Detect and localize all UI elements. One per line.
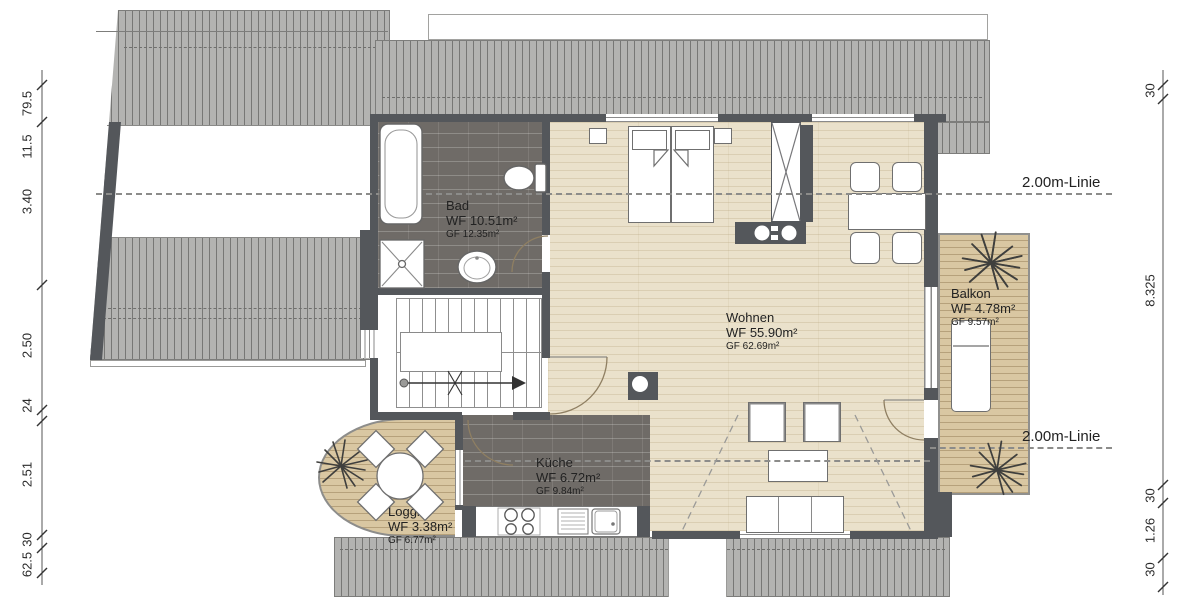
line-2m-bottom-inner xyxy=(465,460,930,462)
roof-dashed-line-bottom-a xyxy=(340,549,668,550)
room-name-balkon: Balkon xyxy=(951,286,1015,301)
armchair-1 xyxy=(748,402,786,442)
dimension-ticks-right xyxy=(1158,80,1168,592)
wall-bad-stair-divider xyxy=(370,288,550,295)
room-label-loggia: Loggia WF 3.38m² GF 6.77m² xyxy=(388,504,452,546)
room-label-kueche: Küche WF 6.72m² GF 9.84m² xyxy=(536,455,600,497)
wall-stair-bottom-right xyxy=(513,412,550,420)
label-2m-linie-top: 2.00m-Linie xyxy=(1022,174,1100,191)
kitchen-island xyxy=(735,222,806,244)
room-name-kueche: Küche xyxy=(536,455,600,470)
door-opening-balkon xyxy=(924,400,938,438)
nightstand-right xyxy=(714,128,732,144)
kitchen-counter-stub-left xyxy=(462,506,476,537)
room-name-wohnen: Wohnen xyxy=(726,310,798,325)
roof-gap-bottom xyxy=(668,537,727,597)
window-top-bed xyxy=(606,114,718,122)
armchair-2 xyxy=(803,402,841,442)
wall-shaft-right xyxy=(801,125,813,222)
room-wf-loggia: WF 3.38m² xyxy=(388,519,452,534)
line-2m-top xyxy=(96,193,1112,195)
window-top-dining xyxy=(812,114,914,122)
dim-left-5: 2.51 xyxy=(20,443,35,507)
dim-left-7: 62.5 xyxy=(20,533,35,597)
room-wf-wohnen: WF 55.90m² xyxy=(726,325,798,340)
floor-plan: Bad WF 10.51m² GF 12.35m² Wohnen WF 55.9… xyxy=(0,0,1200,600)
roof-overhang-top xyxy=(428,14,988,40)
room-gf-bad: GF 12.35m² xyxy=(446,229,518,241)
staircase-void xyxy=(400,332,502,372)
kitchen-counter xyxy=(462,506,650,537)
wall-stair-bottom-left xyxy=(370,412,462,420)
pillow-right xyxy=(675,130,710,150)
roof-dashed-line-left-bottom1 xyxy=(98,308,362,309)
eaves-strip-left xyxy=(90,360,366,367)
dining-chair-4 xyxy=(892,232,922,264)
shaft-box xyxy=(771,122,801,222)
kitchen-counter-stub-right xyxy=(637,506,650,537)
dim-left-3: 2.50 xyxy=(20,314,35,378)
window-leftblock xyxy=(360,330,378,358)
chimney-block xyxy=(628,372,658,400)
dining-chair-3 xyxy=(850,232,880,264)
label-2m-linie-bottom: 2.00m-Linie xyxy=(1022,428,1100,445)
dim-left-4: 24 xyxy=(20,374,35,438)
roof-dashed-line-top xyxy=(382,97,982,98)
room-name-loggia: Loggia xyxy=(388,504,452,519)
line-2m-bottom-outer xyxy=(930,447,1112,449)
room-label-balkon: Balkon WF 4.78m² GF 9.57m² xyxy=(951,286,1015,328)
dim-right-0: 30 xyxy=(1143,59,1158,123)
dim-right-1: 8.325 xyxy=(1143,259,1158,323)
balkon-lounger xyxy=(951,320,991,412)
room-wf-balkon: WF 4.78m² xyxy=(951,301,1015,316)
sofa xyxy=(746,496,844,533)
roof-dashed-line-left-top xyxy=(124,47,386,48)
room-wf-bad: WF 10.51m² xyxy=(446,213,518,228)
room-wf-kueche: WF 6.72m² xyxy=(536,470,600,485)
window-right-wohnen xyxy=(924,287,938,388)
roof-dashed-line-left-bottom2 xyxy=(98,318,362,319)
nightstand-left xyxy=(589,128,607,144)
room-gf-kueche: GF 9.84m² xyxy=(536,486,600,498)
roof-ridge-line-left xyxy=(96,31,388,32)
room-label-wohnen: Wohnen WF 55.90m² GF 62.69m² xyxy=(726,310,798,352)
door-opening-bad xyxy=(542,235,550,272)
roof-area-top xyxy=(375,40,990,122)
coffee-table xyxy=(768,450,828,482)
dining-table xyxy=(848,193,926,230)
room-gf-wohnen: GF 62.69m² xyxy=(726,341,798,353)
room-gf-loggia: GF 6.77m² xyxy=(388,535,452,547)
wall-leftblock-right xyxy=(360,230,378,330)
pillow-left xyxy=(632,130,667,150)
dimension-ticks-left xyxy=(37,80,47,578)
window-loggia-kueche xyxy=(455,450,463,505)
dining-chair-2 xyxy=(892,162,922,192)
dim-left-2: 3.40 xyxy=(20,170,35,234)
room-name-bad: Bad xyxy=(446,198,518,213)
roof-area-top-right xyxy=(935,122,990,154)
roof-dashed-line-bottom-b xyxy=(727,549,945,550)
dining-chair-1 xyxy=(850,162,880,192)
wall-right-step xyxy=(938,492,952,537)
room-gf-balkon: GF 9.57m² xyxy=(951,317,1015,329)
dim-right-4: 30 xyxy=(1143,538,1158,600)
room-label-bad: Bad WF 10.51m² GF 12.35m² xyxy=(446,198,518,240)
dormer-band xyxy=(107,125,390,238)
